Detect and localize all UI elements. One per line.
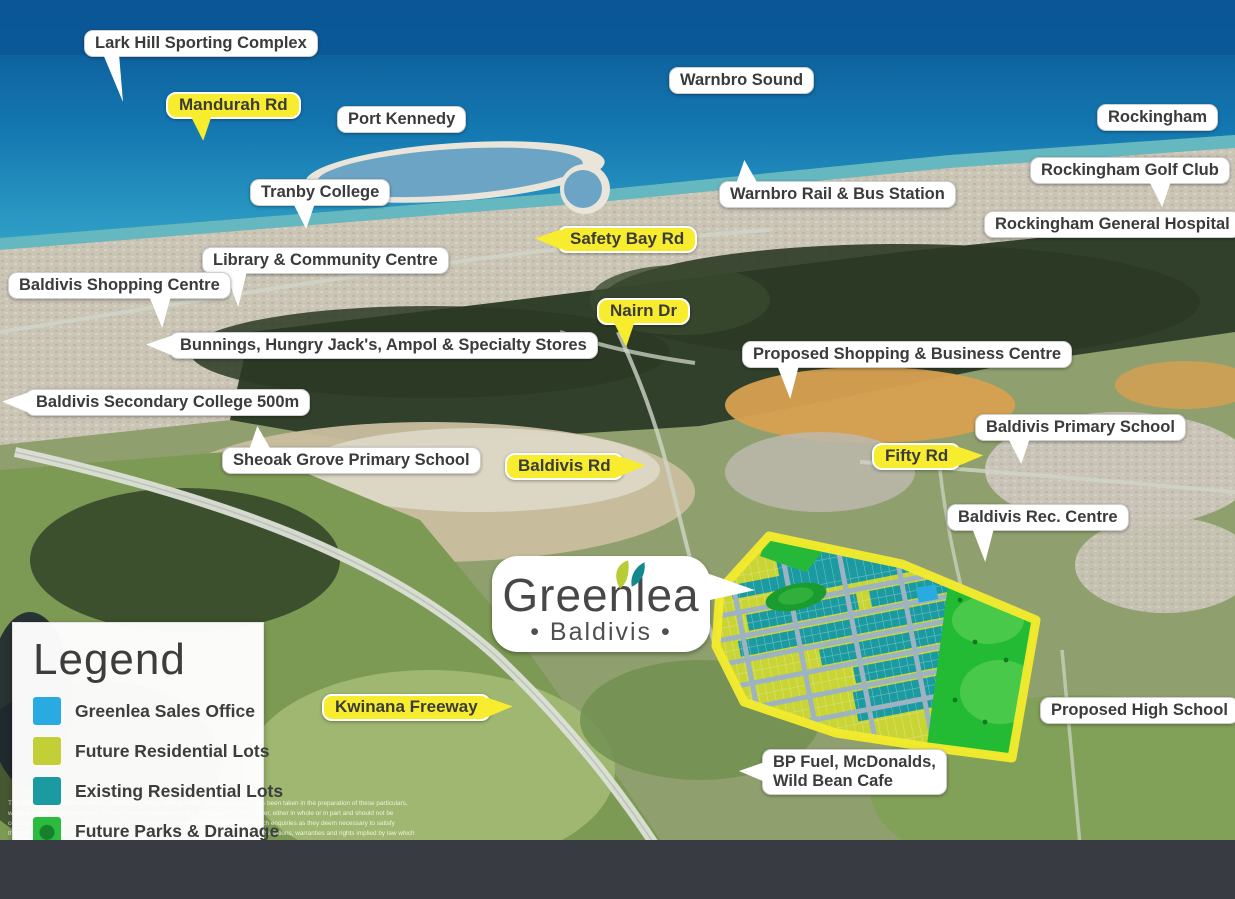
callout-text: Port Kennedy xyxy=(348,110,455,128)
existing-lots-swatch xyxy=(33,777,61,805)
callout-text: Rockingham General Hospital xyxy=(995,215,1230,233)
callout-lark-hill: Lark Hill Sporting Complex xyxy=(84,30,318,57)
greenlea-logo-bubble: Greenlea • Baldivis • xyxy=(492,556,710,652)
callout-text: Rockingham Golf Club xyxy=(1041,161,1219,179)
callout-text: Baldivis Primary School xyxy=(986,418,1175,436)
callout-text: Baldivis Shopping Centre xyxy=(19,276,220,294)
callout-text: Baldivis Rec. Centre xyxy=(958,508,1118,526)
legend-item-label: Existing Residential Lots xyxy=(75,781,283,802)
legend-item-existing-lots: Existing Residential Lots xyxy=(33,777,243,805)
logo-tagline: • Baldivis • xyxy=(492,620,710,645)
callout-text: Proposed High School xyxy=(1051,701,1228,719)
road-label-kwinana-freeway: Kwinana Freeway xyxy=(322,694,491,721)
road-label-text: Safety Bay Rd xyxy=(570,229,684,248)
park-tree xyxy=(973,640,978,645)
legend-item-label: Greenlea Sales Office xyxy=(75,701,255,722)
road-label-safety-bay-rd: Safety Bay Rd xyxy=(557,226,697,253)
road-label-text: Fifty Rd xyxy=(885,446,948,465)
legend-title: Legend xyxy=(33,635,243,685)
road-label-fifty-rd: Fifty Rd xyxy=(872,443,961,470)
callout-text: Lark Hill Sporting Complex xyxy=(95,34,307,52)
callout-text-line1: BP Fuel, McDonalds, xyxy=(773,753,936,772)
callout-text: Bunnings, Hungry Jack's, Ampol & Special… xyxy=(180,336,587,354)
callout-text: Sheoak Grove Primary School xyxy=(233,451,470,469)
callout-rockingham: Rockingham xyxy=(1097,104,1218,131)
callout-text: Warnbro Sound xyxy=(680,71,803,89)
road-label-mandurah-rd: Mandurah Rd xyxy=(166,92,301,119)
callout-text-line2: Wild Bean Cafe xyxy=(773,772,936,791)
park-tree xyxy=(958,598,963,603)
park-tree xyxy=(983,720,988,725)
callout-proposed-shopping: Proposed Shopping & Business Centre xyxy=(742,341,1072,368)
legend-item-label: Future Residential Lots xyxy=(75,741,269,762)
road-label-text: Mandurah Rd xyxy=(179,95,288,114)
legend-item-label: Future Parks & Drainage xyxy=(75,821,279,842)
bottom-bar xyxy=(0,840,1235,899)
road-label-baldivis-rd: Baldivis Rd xyxy=(505,453,624,480)
callout-warnbro-sound: Warnbro Sound xyxy=(669,67,814,94)
future-lots-swatch xyxy=(33,737,61,765)
legend-item-future-lots: Future Residential Lots xyxy=(33,737,243,765)
sales-office-swatch xyxy=(33,697,61,725)
legend-panel: Legend Greenlea Sales Office Future Resi… xyxy=(12,622,264,864)
road-label-text: Kwinana Freeway xyxy=(335,697,478,716)
road-label-text: Nairn Dr xyxy=(610,301,677,320)
callout-text: Library & Community Centre xyxy=(213,251,438,269)
callout-baldivis-secondary: Baldivis Secondary College 500m xyxy=(25,389,310,416)
callout-baldivis-primary: Baldivis Primary School xyxy=(975,414,1186,441)
callout-baldivis-shopping: Baldivis Shopping Centre xyxy=(8,272,231,299)
callout-library: Library & Community Centre xyxy=(202,247,449,274)
road-label-nairn-dr: Nairn Dr xyxy=(597,298,690,325)
callout-text: Warnbro Rail & Bus Station xyxy=(730,185,945,203)
map-stage: Lark Hill Sporting Complex Port Kennedy … xyxy=(0,0,1235,899)
callout-sheoak-grove: Sheoak Grove Primary School xyxy=(222,447,481,474)
callout-proposed-high-school: Proposed High School xyxy=(1040,697,1235,724)
callout-text: Tranby College xyxy=(261,183,379,201)
callout-bp-fuel: BP Fuel, McDonalds, Wild Bean Cafe xyxy=(762,749,947,795)
park-tree xyxy=(953,698,958,703)
callout-warnbro-station: Warnbro Rail & Bus Station xyxy=(719,181,956,208)
callout-tranby-college: Tranby College xyxy=(250,179,390,206)
callout-text: Proposed Shopping & Business Centre xyxy=(753,345,1061,363)
salt-lake-east xyxy=(564,170,602,208)
callout-bunnings: Bunnings, Hungry Jack's, Ampol & Special… xyxy=(169,332,598,359)
callout-text: Baldivis Secondary College 500m xyxy=(36,393,299,411)
callout-rockingham-hospital: Rockingham General Hospital xyxy=(984,211,1235,238)
sand-clearing xyxy=(725,367,1015,443)
callout-rockingham-golf: Rockingham Golf Club xyxy=(1030,157,1230,184)
callout-text: Rockingham xyxy=(1108,108,1207,126)
leaf-icon xyxy=(600,558,658,590)
park-tree xyxy=(1004,658,1009,663)
legend-item-sales-office: Greenlea Sales Office xyxy=(33,697,243,725)
tree-clump xyxy=(30,488,340,632)
callout-baldivis-rec: Baldivis Rec. Centre xyxy=(947,504,1129,531)
road-label-text: Baldivis Rd xyxy=(518,456,611,475)
callout-port-kennedy: Port Kennedy xyxy=(337,106,466,133)
